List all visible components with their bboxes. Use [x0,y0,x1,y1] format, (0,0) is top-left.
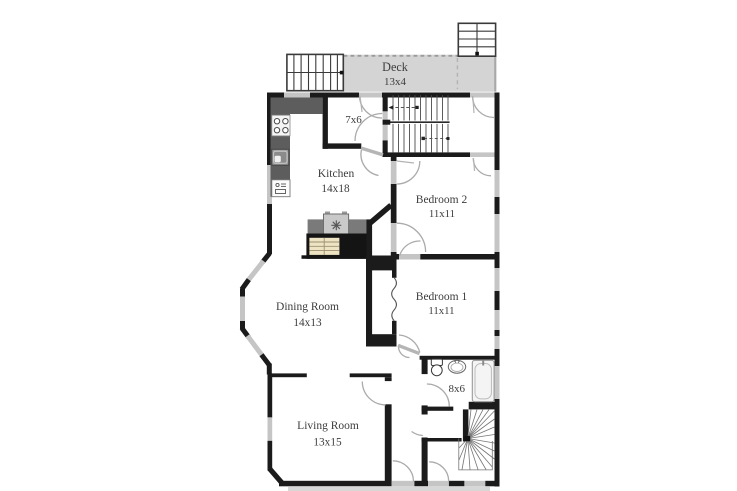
svg-text:Bedroom 1: Bedroom 1 [416,291,468,303]
svg-text:14x18: 14x18 [321,183,350,195]
svg-text:Kitchen: Kitchen [318,168,355,180]
svg-text:8x6: 8x6 [449,383,466,395]
svg-text:Bedroom 2: Bedroom 2 [416,194,468,206]
svg-text:13x15: 13x15 [313,437,342,449]
svg-text:7x6: 7x6 [345,114,362,126]
svg-text:Living Room: Living Room [297,420,359,432]
svg-text:13x4: 13x4 [384,76,407,88]
svg-text:14x13: 14x13 [293,317,322,329]
svg-text:11x11: 11x11 [428,305,454,317]
svg-text:11x11: 11x11 [429,208,455,220]
svg-text:Deck: Deck [382,60,409,74]
svg-text:Dining Room: Dining Room [276,301,339,313]
